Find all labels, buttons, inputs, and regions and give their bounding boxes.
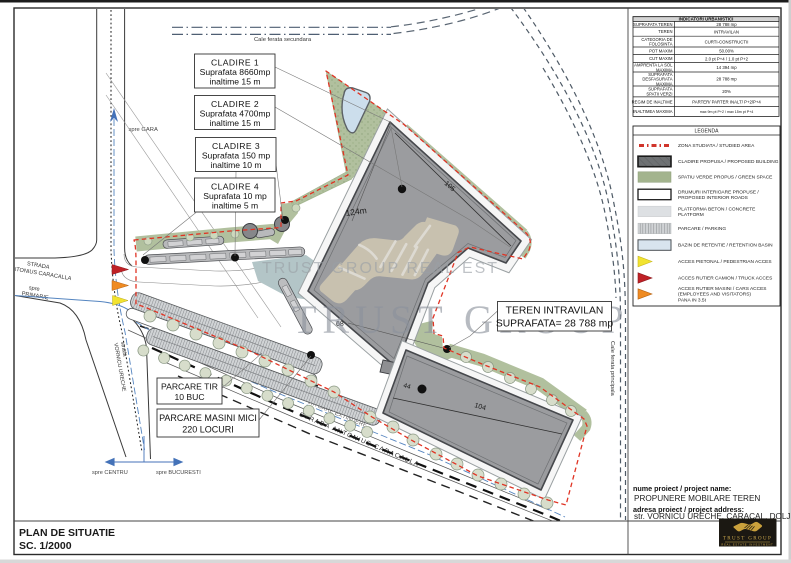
svg-text:SUPRAFATA= 28 788 mp: SUPRAFATA= 28 788 mp (496, 319, 614, 330)
svg-text:inaltime 10 m: inaltime 10 m (210, 160, 261, 170)
svg-text:SC. 1/2000: SC. 1/2000 (19, 540, 72, 552)
svg-text:INTRAVILAN: INTRAVILAN (714, 29, 739, 34)
svg-text:BAZIN DE RETENTIE / RETENTION: BAZIN DE RETENTIE / RETENTION BASIN (678, 243, 773, 249)
svg-text:CLADIRE 3: CLADIRE 3 (212, 141, 260, 151)
svg-text:max 9m pt P+2 / max 15m pt P+4: max 9m pt P+2 / max 15m pt P+4 (700, 110, 754, 114)
svg-text:Suprafata 8660mp: Suprafata 8660mp (200, 67, 271, 77)
svg-text:REAL ESTATE INVESTMENT: REAL ESTATE INVESTMENT (721, 543, 773, 547)
svg-text:Cale ferata principala: Cale ferata principala (609, 341, 615, 397)
svg-text:LEGENDA: LEGENDA (695, 129, 720, 135)
svg-text:PARTER/ PARTER INALT/ P+2/P+4: PARTER/ PARTER INALT/ P+2/P+4 (692, 100, 761, 105)
svg-text:50.00%: 50.00% (719, 49, 734, 54)
svg-text:ACCES RUTIER MASINI / CARS ACC: ACCES RUTIER MASINI / CARS ACCES (678, 286, 767, 292)
svg-text:INALTIMEA MAXIMA: INALTIMEA MAXIMA (633, 109, 672, 114)
svg-text:ZONA STUDIATA / STUDIED AREA: ZONA STUDIATA / STUDIED AREA (678, 143, 755, 149)
svg-text:FOLOSINTA: FOLOSINTA (649, 42, 673, 47)
svg-text:PLATFORMA BETON / CONCRETE: PLATFORMA BETON / CONCRETE (678, 206, 755, 212)
svg-text:inaltime 15 m: inaltime 15 m (209, 77, 260, 87)
svg-text:TEREN: TEREN (658, 29, 672, 34)
svg-text:REGIM DE INALTIME: REGIM DE INALTIME (632, 99, 673, 104)
svg-text:PLAN DE SITUATIE: PLAN DE SITUATIE (19, 527, 115, 539)
svg-text:Suprafata 10 mp: Suprafata 10 mp (203, 191, 267, 201)
svg-text:INDICATORI URBANISTICI: INDICATORI URBANISTICI (679, 17, 734, 22)
svg-text:Suprafata 4700mp: Suprafata 4700mp (200, 109, 271, 119)
svg-text:28 788 mp: 28 788 mp (716, 22, 737, 27)
svg-text:CLADIRE 4: CLADIRE 4 (211, 182, 259, 192)
svg-text:inaltime 5 m: inaltime 5 m (212, 201, 258, 211)
svg-text:PROPUNERE MOBILARE TEREN: PROPUNERE MOBILARE TEREN (634, 494, 760, 503)
svg-text:220 LOCURI: 220 LOCURI (182, 425, 234, 435)
svg-text:POT MAXIM: POT MAXIM (649, 48, 673, 53)
svg-text:Suprafata 150 mp: Suprafata 150 mp (202, 151, 271, 161)
svg-text:28 788 mp: 28 788 mp (716, 77, 737, 82)
svg-text:PANA IN 3.5t: PANA IN 3.5t (678, 297, 707, 303)
svg-text:CLADIRE 2: CLADIRE 2 (211, 99, 259, 109)
svg-text:PROPOSED INTERIOR ROADS: PROPOSED INTERIOR ROADS (678, 195, 748, 201)
svg-text:PARCARE TIR: PARCARE TIR (161, 382, 218, 392)
svg-text:TEREN INTRAVILAN: TEREN INTRAVILAN (506, 306, 604, 317)
svg-text:20%: 20% (722, 89, 731, 94)
svg-text:TRUST GROUP REAL EST: TRUST GROUP REAL EST (262, 260, 499, 277)
svg-text:(EMPLOYEES AND VISITATORS): (EMPLOYEES AND VISITATORS) (678, 292, 751, 298)
svg-text:nume proiect / project name:: nume proiect / project name: (633, 484, 731, 493)
svg-text:DRUMURI INTERIOARE PROPUSE /: DRUMURI INTERIOARE PROPUSE / (678, 189, 759, 195)
svg-text:SPATII VERZI: SPATII VERZI (646, 91, 672, 96)
svg-text:CLADIRE 1: CLADIRE 1 (211, 58, 259, 68)
svg-text:PARCARE MASINI MICI: PARCARE MASINI MICI (159, 413, 257, 423)
svg-text:PARCARE / PARKING: PARCARE / PARKING (678, 226, 726, 232)
svg-text:TRUST GROUP: TRUST GROUP (723, 537, 772, 542)
svg-text:Cale ferata secundara: Cale ferata secundara (254, 37, 312, 43)
svg-text:2.0 pt P+4 / 1.0 pt P+2: 2.0 pt P+4 / 1.0 pt P+2 (705, 56, 749, 61)
svg-text:SUPRAFATA TEREN: SUPRAFATA TEREN (633, 22, 672, 27)
svg-text:inaltime 15 m: inaltime 15 m (209, 118, 260, 128)
svg-text:CUT MAXIM: CUT MAXIM (649, 56, 673, 61)
svg-text:ACCES PIETONAL / PEDESTRIAN AC: ACCES PIETONAL / PEDESTRIAN ACCES (678, 259, 772, 265)
svg-text:CURTI-CONSTRUCTII: CURTI-CONSTRUCTII (705, 39, 749, 44)
svg-text:spre BUCURESTI: spre BUCURESTI (156, 470, 201, 476)
svg-text:spre CENTRU: spre CENTRU (92, 470, 128, 476)
svg-text:SPATIU VERDE PROPUS / GREEN SP: SPATIU VERDE PROPUS / GREEN SPACE (678, 175, 772, 181)
svg-text:14 394 mp: 14 394 mp (716, 65, 737, 70)
svg-text:PLATFORM: PLATFORM (678, 212, 704, 218)
svg-text:CLADIRE PROPUSA / PROPOSED BUI: CLADIRE PROPUSA / PROPOSED BUILDING (678, 159, 779, 165)
svg-text:spre GARA: spre GARA (129, 127, 158, 133)
svg-text:10 BUC: 10 BUC (174, 392, 204, 402)
svg-text:ACCES RUTIER CAMION / TRUCK AC: ACCES RUTIER CAMION / TRUCK ACCES (678, 276, 772, 282)
